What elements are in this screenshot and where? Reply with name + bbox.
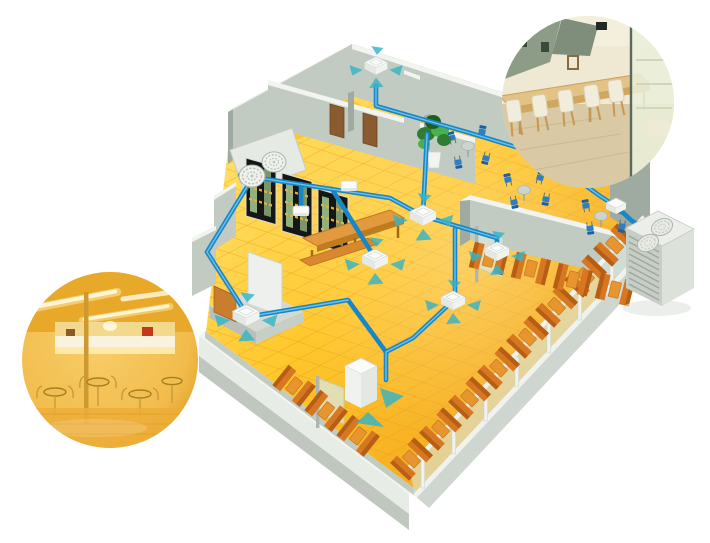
photo-pole xyxy=(84,292,89,424)
photo-speaker-icon xyxy=(596,22,607,30)
scene-svg xyxy=(0,0,710,543)
door-icon xyxy=(330,104,344,138)
photo-inset-left xyxy=(22,272,198,448)
wall-mounted-unit xyxy=(293,206,309,216)
photo-speaker-icon xyxy=(24,300,36,310)
ventilation-fan-icon xyxy=(239,165,265,187)
outdoor-unit xyxy=(623,211,694,316)
door-icon xyxy=(363,113,377,147)
illustration-stage xyxy=(0,0,710,543)
photo-espresso-machine xyxy=(142,327,153,336)
wall-mounted-unit xyxy=(341,181,357,191)
ventilation-fan-icon xyxy=(262,152,286,172)
photo-glass-partition xyxy=(631,14,674,190)
